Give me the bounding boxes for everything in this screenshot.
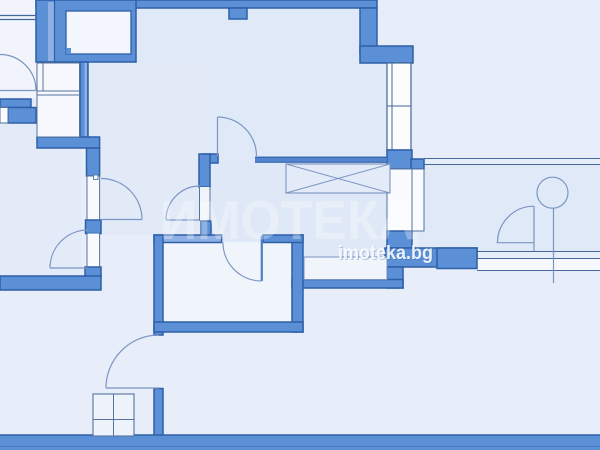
svg-text:imoteka.bg: imoteka.bg [338, 242, 433, 264]
